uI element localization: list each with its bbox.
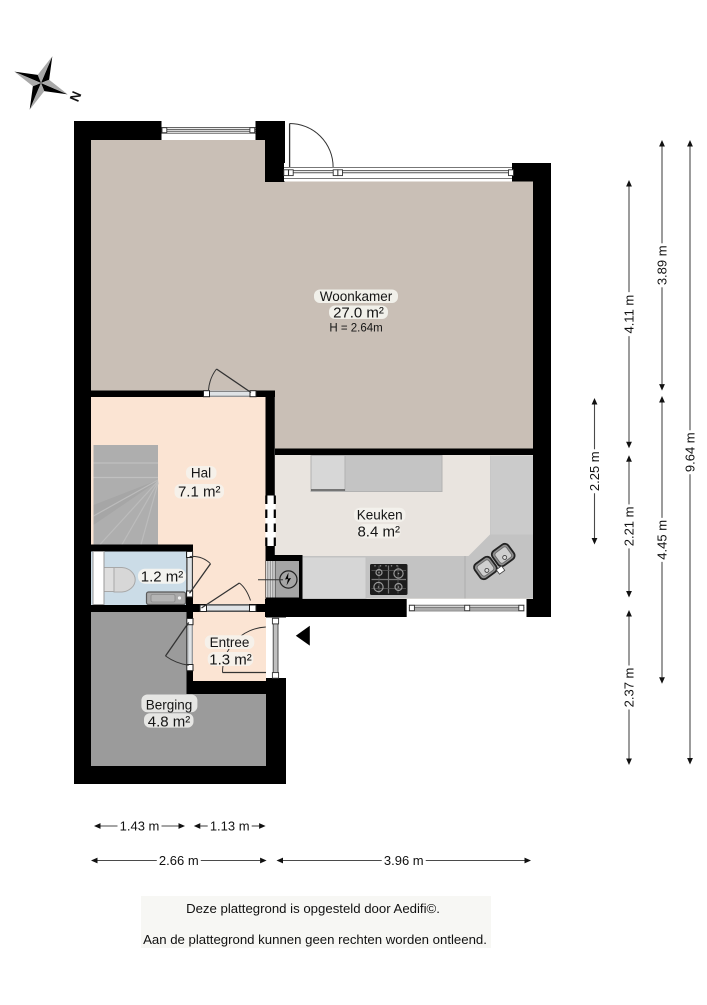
- svg-text:3.96 m: 3.96 m: [384, 853, 424, 868]
- svg-text:8.4 m²: 8.4 m²: [357, 524, 400, 541]
- svg-text:Keuken: Keuken: [357, 508, 403, 523]
- svg-text:4.45 m: 4.45 m: [655, 520, 670, 560]
- svg-text:2.66 m: 2.66 m: [159, 853, 199, 868]
- svg-text:Hal: Hal: [191, 466, 211, 481]
- svg-text:Berging: Berging: [146, 697, 193, 712]
- svg-text:27.0 m²: 27.0 m²: [333, 305, 384, 322]
- svg-text:Entree: Entree: [210, 635, 250, 650]
- svg-text:3.89 m: 3.89 m: [655, 245, 670, 285]
- svg-text:4.11 m: 4.11 m: [622, 295, 637, 334]
- svg-text:Woonkamer: Woonkamer: [320, 289, 393, 304]
- svg-text:1.3 m²: 1.3 m²: [209, 651, 252, 668]
- svg-text:1.13 m: 1.13 m: [210, 819, 250, 834]
- svg-text:2.21 m: 2.21 m: [622, 507, 637, 547]
- svg-text:7.1 m²: 7.1 m²: [178, 484, 221, 501]
- svg-text:2.37 m: 2.37 m: [622, 668, 637, 708]
- svg-text:2.25 m: 2.25 m: [587, 451, 602, 491]
- svg-text:9.64 m: 9.64 m: [683, 432, 698, 472]
- svg-text:Deze plattegrond is opgesteld: Deze plattegrond is opgesteld door Aedif…: [186, 901, 440, 916]
- svg-text:4.8 m²: 4.8 m²: [148, 714, 191, 731]
- svg-text:Aan de plattegrond kunnen geen: Aan de plattegrond kunnen geen rechten w…: [143, 932, 487, 947]
- svg-text:H = 2.64m: H = 2.64m: [329, 322, 382, 334]
- svg-text:1.43 m: 1.43 m: [120, 819, 160, 834]
- svg-text:1.2 m²: 1.2 m²: [141, 569, 184, 586]
